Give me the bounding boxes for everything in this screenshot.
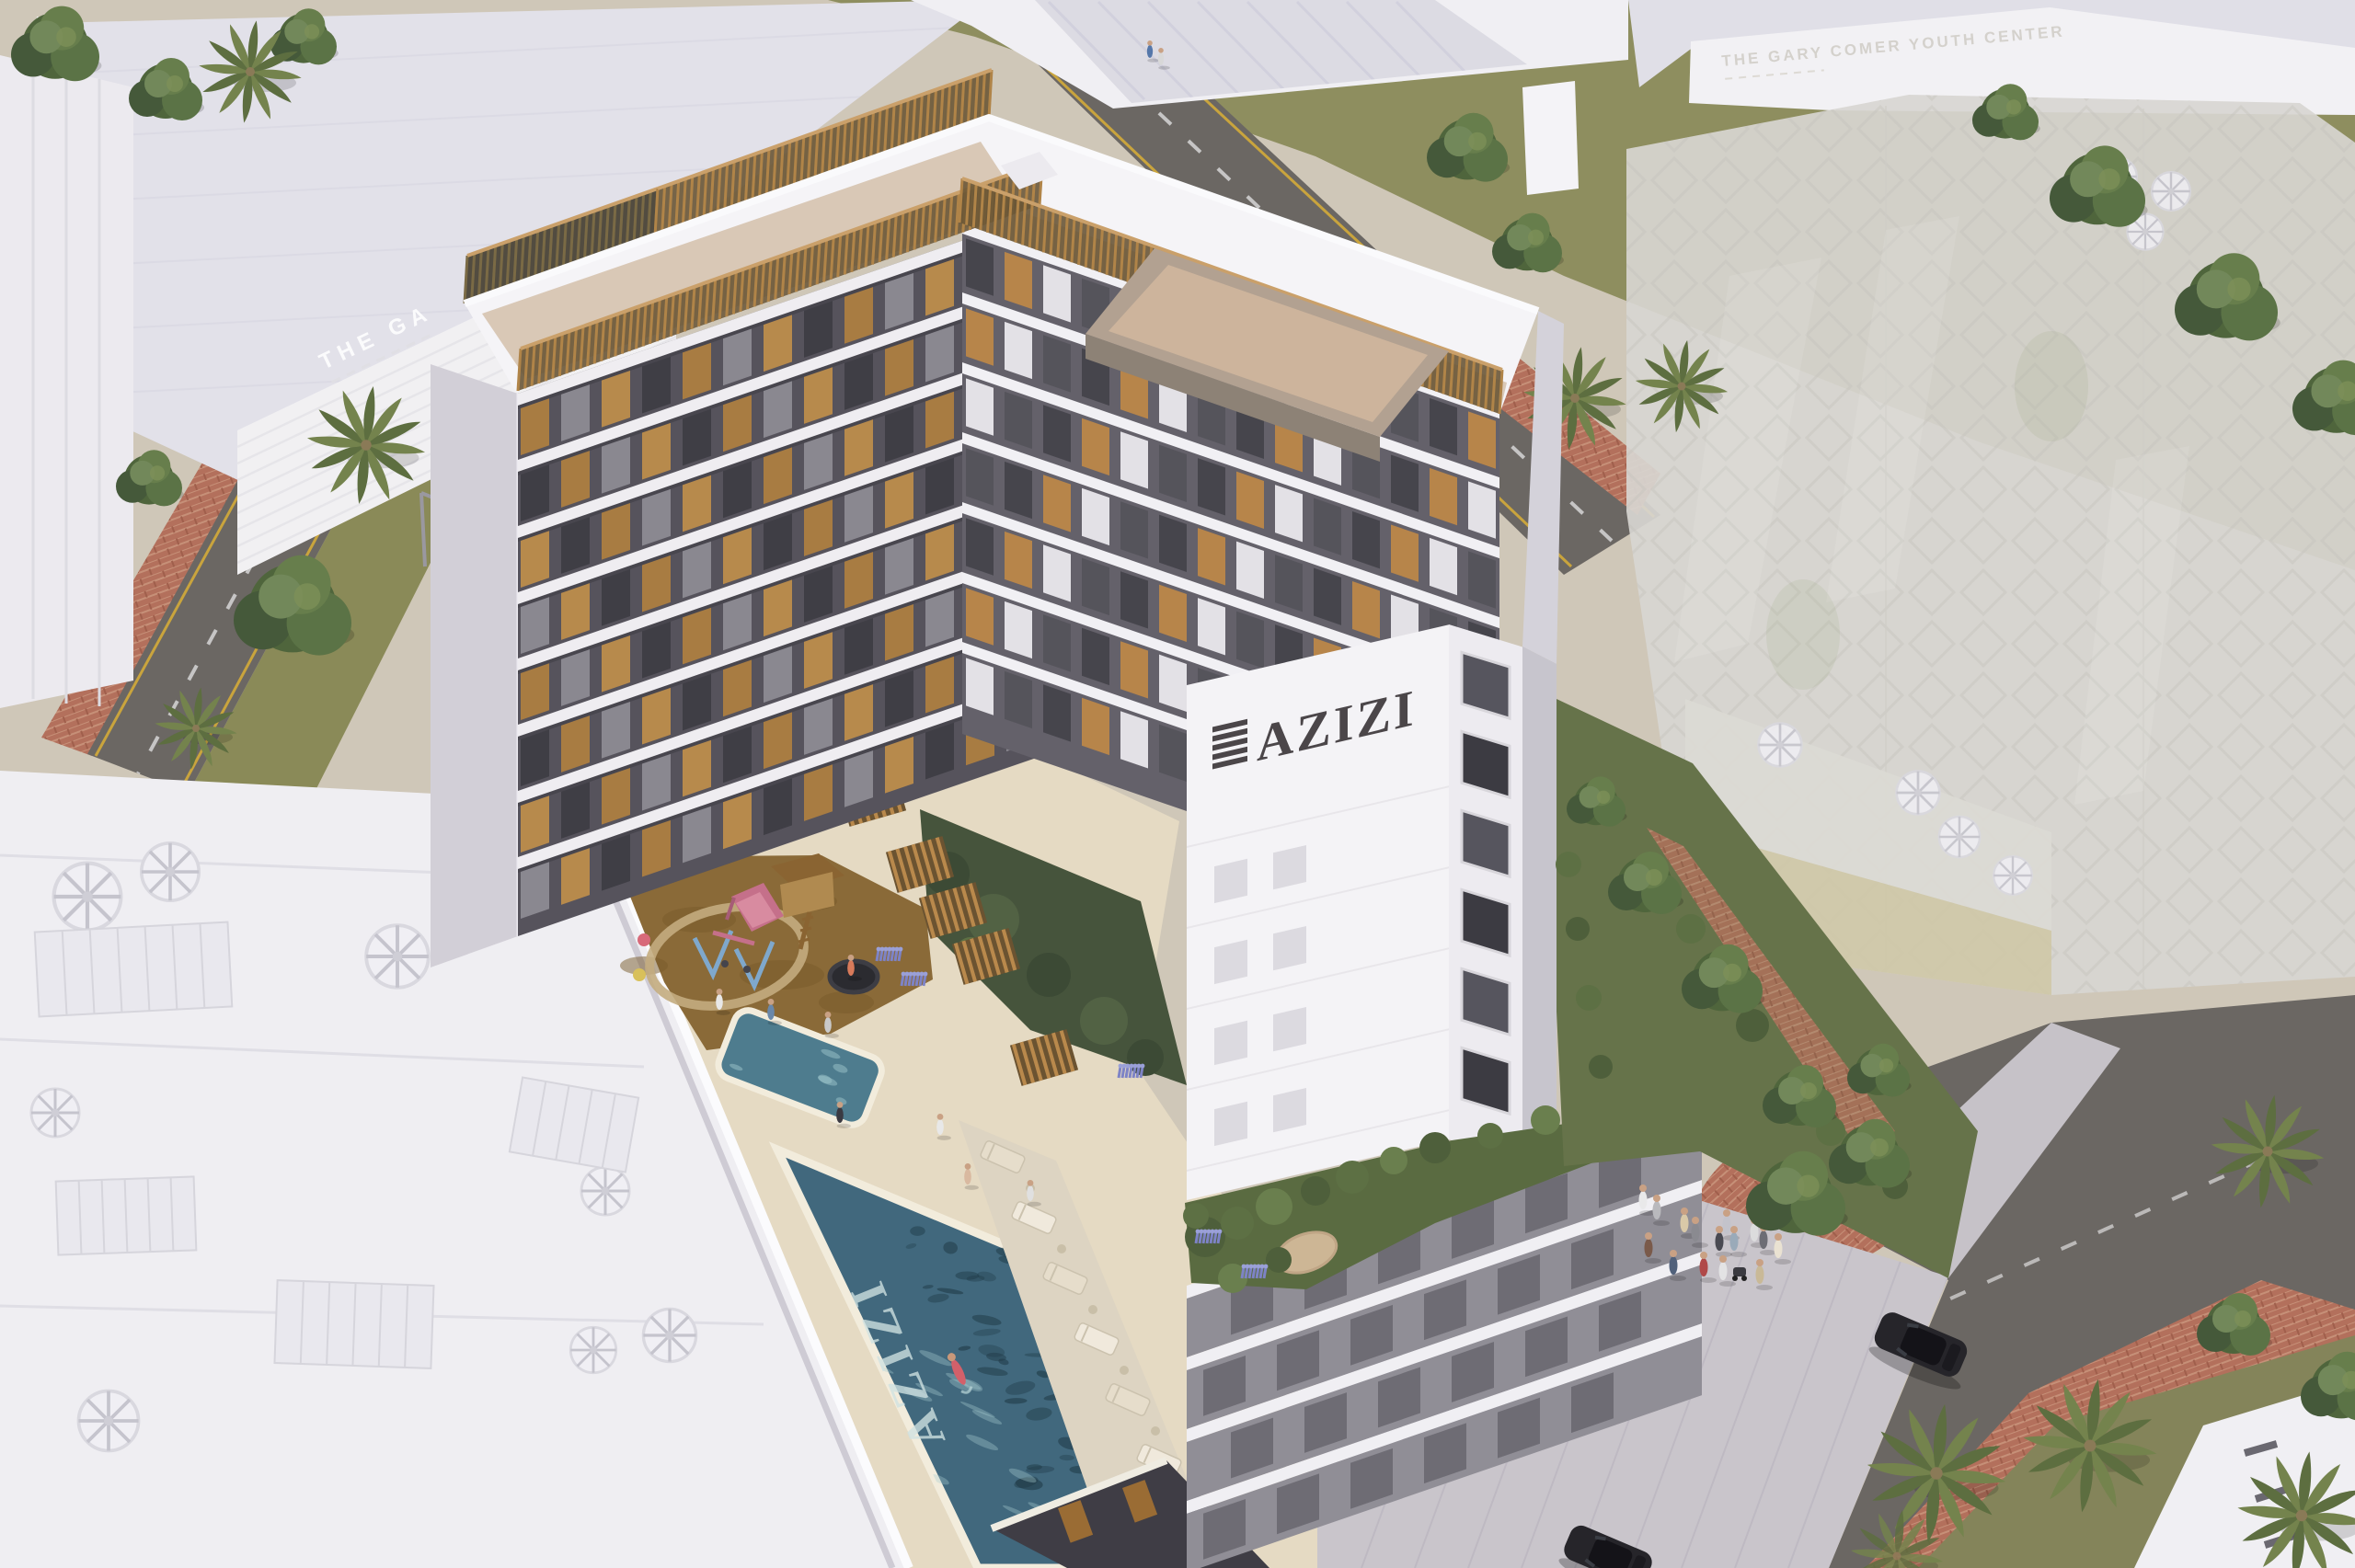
tower-front-face: AZIZI [1187,624,1449,1200]
aerial-render: THE GA THE GARY COMER YOUTH CENTER [0,0,2355,1568]
tower-shaded-side [1522,647,1557,1170]
west-end-wall [431,364,518,967]
spring-rider [638,933,650,946]
spring-rider [633,968,646,981]
render-viewport: THE GA THE GARY COMER YOUTH CENTER [0,0,2355,1568]
tower-window-strip [1449,624,1522,1162]
top-center-roof-box [1522,81,1579,195]
